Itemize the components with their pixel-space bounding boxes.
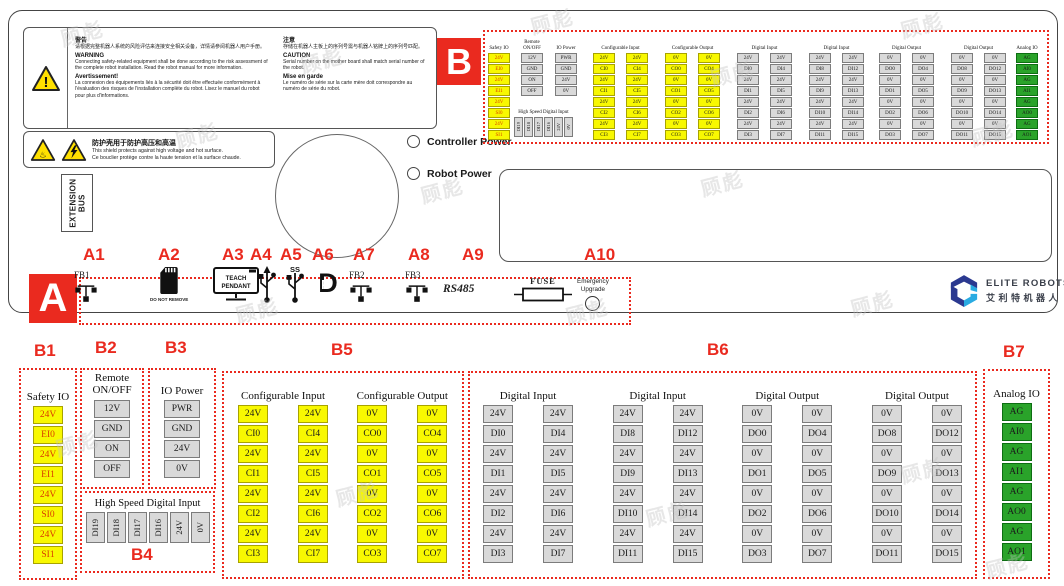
- pin-cell: 24V: [737, 75, 759, 85]
- pin-cell: ON: [521, 75, 543, 85]
- pin-cell: DI4: [543, 425, 573, 443]
- pin-cell: 0V: [665, 119, 687, 129]
- pin-cell: 24V: [673, 445, 703, 463]
- pin-cell: AG: [1016, 119, 1038, 129]
- io-group-co: Configurable Output0VCO00VCO10VCO20VCO30…: [665, 35, 720, 140]
- pin-cell: CI3: [238, 545, 268, 563]
- pin-cell: AI1: [1016, 86, 1038, 96]
- pin-cell: DO6: [912, 108, 934, 118]
- io-group-safety: Safety IO24VEI024VEI124VSI024VSI1: [488, 35, 510, 140]
- svg-text:♨: ♨: [39, 149, 47, 159]
- callout-a4: A4: [250, 245, 272, 265]
- pin-cell: 0V: [984, 97, 1006, 107]
- pin-cell: AO1: [1016, 130, 1038, 140]
- pin-cell: CO3: [357, 545, 387, 563]
- pin-cell: SI0: [488, 108, 510, 118]
- io-group-title: Digital Input: [824, 35, 850, 51]
- pin-cell: 0V: [698, 119, 720, 129]
- pin-cell: 0V: [742, 525, 772, 543]
- pin-cell: 24V: [809, 75, 831, 85]
- section-b-region: Safety IO24VEI024VEI124VSI024VSI1Remote …: [483, 30, 1049, 144]
- brand-logo: ELITE ROBOTS 艾利特机器人: [949, 274, 1064, 308]
- pin-cell: 24V: [170, 512, 189, 543]
- pin-cell: DO11: [951, 130, 973, 140]
- io-group-do2: Digital Output0VDO80VDO90VDO100VDO110VDO…: [951, 35, 1006, 140]
- pin-cell: CI7: [298, 545, 328, 563]
- pin-cell: DO1: [742, 465, 772, 483]
- pin-cell: CI3: [593, 130, 615, 140]
- pin-cell: CO6: [698, 108, 720, 118]
- pin-cell: 0V: [357, 525, 387, 543]
- pin-cell: 0V: [872, 485, 902, 503]
- fb2-label: FB2: [349, 270, 365, 280]
- pin-cell: CO4: [417, 425, 447, 443]
- robot-power-label: Robot Power: [427, 168, 492, 180]
- pin-cell: CO0: [665, 64, 687, 74]
- pin-cell: 0V: [191, 512, 210, 543]
- pin-cell: DI7: [543, 545, 573, 563]
- pin-cell: 24V: [613, 405, 643, 423]
- io-group-title: Digital Output: [755, 377, 819, 402]
- pin-cell: 0V: [417, 485, 447, 503]
- fb-icon: [405, 281, 429, 306]
- pin-cell: DI3: [737, 130, 759, 140]
- io-group-do1: Digital Output0VDO00VDO10VDO20VDO30VDO40…: [879, 35, 934, 140]
- pin-cell: 0V: [564, 117, 573, 137]
- pin-cell: 24V: [809, 119, 831, 129]
- brand-name: ELITE ROBOTS: [986, 278, 1064, 289]
- pin-cell: 12V: [94, 400, 130, 418]
- caution-zh-body: 存储在机器人主板上的序列号需与机器人铭牌上的序列号匹配。: [283, 44, 429, 51]
- pin-cell: 24V: [238, 485, 268, 503]
- pin-cell: AI1: [1002, 463, 1032, 481]
- pin-cell: AG: [1016, 53, 1038, 63]
- pin-cell: CI1: [238, 465, 268, 483]
- pin-cell: DO8: [951, 64, 973, 74]
- io-group-hsdi: High Speed Digital InputDI19DI18DI17DI16…: [86, 496, 210, 543]
- fb3-port: FB3: [405, 270, 429, 306]
- pin-cell: 24V: [770, 75, 792, 85]
- pin-cell: CO2: [357, 505, 387, 523]
- io-group-remote: Remote ON/OFF12VGNDONOFF: [519, 35, 545, 96]
- pin-cell: DI13: [842, 86, 864, 96]
- pin-cell: CO0: [357, 425, 387, 443]
- warning-zh-body: 请根据完整机器人系统的风险评估来连接安全相关设备，详情请参阅机器人用户手册。: [75, 44, 269, 51]
- io-group-title: Configurable Input: [241, 377, 325, 402]
- b3-box: IO PowerPWRGND24V0V: [148, 368, 216, 489]
- pin-cell: 0V: [802, 525, 832, 543]
- pin-cell: 0V: [951, 53, 973, 63]
- io-group-title: Remote ON/OFF: [519, 35, 545, 51]
- brand-name-zh: 艾利特机器人: [986, 291, 1064, 304]
- pin-cell: 0V: [912, 53, 934, 63]
- fb2-port: FB2: [349, 270, 373, 306]
- sd-card-slot: DO NOT REMOVE: [150, 266, 188, 302]
- pin-cell: 24V: [298, 405, 328, 423]
- pin-cell: CI6: [626, 108, 648, 118]
- io-group-title: Configurable Output: [357, 377, 448, 402]
- fb3-label: FB3: [405, 270, 421, 280]
- pin-cell: 0V: [951, 75, 973, 85]
- pin-cell: 24V: [842, 119, 864, 129]
- io-group-di1: Digital Input24VDI024VDI124VDI224VDI324V…: [737, 35, 792, 140]
- pin-cell: DI1: [737, 86, 759, 96]
- b6-box: Digital Input24VDI024VDI124VDI224VDI324V…: [468, 371, 977, 579]
- warning-notice-box: ! 警告 请根据完整机器人系统的风险评估来连接安全相关设备，详情请参阅机器人用户…: [23, 27, 437, 129]
- pin-cell: 24V: [673, 485, 703, 503]
- io-group-di1: Digital Input24VDI024VDI124VDI224VDI324V…: [483, 377, 573, 563]
- io-group-analog: Analog IOAGAI0AGAI1AGAO0AGAO1: [993, 375, 1040, 561]
- io-group-ci: Configurable Input24VCI024VCI124VCI224VC…: [238, 377, 328, 563]
- callout-b3: B3: [165, 338, 187, 358]
- pin-cell: EI1: [33, 466, 63, 484]
- usb3-port: SS: [284, 265, 306, 304]
- pin-cell: CI2: [238, 505, 268, 523]
- pin-cell: DI18: [524, 117, 533, 137]
- io-group-title: Digital Output: [885, 377, 949, 402]
- warning-fr-body: La connexion des équipements liés à la s…: [75, 80, 269, 100]
- pin-cell: 24V: [809, 53, 831, 63]
- pin-cell: 24V: [555, 75, 577, 85]
- usb-ss-icon: SS: [284, 265, 306, 304]
- teach-pendant-icon: TEACH PENDANT: [213, 267, 259, 302]
- pin-cell: GND: [164, 420, 200, 438]
- pin-cell: CO5: [698, 86, 720, 96]
- pin-cell: DO9: [872, 465, 902, 483]
- svg-text:P: P: [321, 277, 330, 292]
- pin-cell: CO3: [665, 130, 687, 140]
- pin-cell: DO3: [879, 130, 901, 140]
- io-group-hsdi: High Speed Digital InputDI19DI18DI17DI16…: [514, 108, 573, 137]
- pin-cell: 24V: [626, 75, 648, 85]
- b2-box: Remote ON/OFF12VGNDONOFF: [80, 368, 144, 489]
- pin-cell: 24V: [770, 119, 792, 129]
- pin-cell: 0V: [802, 445, 832, 463]
- pin-cell: 24V: [593, 75, 615, 85]
- pin-cell: 0V: [665, 75, 687, 85]
- displayport: D P: [314, 269, 342, 297]
- pin-cell: DI17: [128, 512, 147, 543]
- pin-cell: DI6: [543, 505, 573, 523]
- pin-cell: 0V: [951, 97, 973, 107]
- extension-bus-port: EXTENSION BUS: [61, 174, 93, 232]
- pin-cell: DO9: [951, 86, 973, 96]
- pin-cell: AG: [1002, 443, 1032, 461]
- pin-cell: OFF: [521, 86, 543, 96]
- pin-cell: 0V: [872, 445, 902, 463]
- pin-cell: CO5: [417, 465, 447, 483]
- caution-zh-title: 注意: [283, 35, 429, 44]
- io-group-iopower: IO PowerPWRGND24V0V: [161, 372, 203, 478]
- io-group-di2: Digital Input24VDI824VDI924VDI1024VDI112…: [613, 377, 703, 563]
- io-group-title: Configurable Input: [601, 35, 639, 51]
- pin-cell: DO0: [742, 425, 772, 443]
- pin-cell: 24V: [543, 445, 573, 463]
- pin-cell: CO2: [665, 108, 687, 118]
- usb-icon: [256, 265, 278, 304]
- pin-cell: 0V: [742, 445, 772, 463]
- robot-power-led-row: Robot Power: [407, 167, 492, 180]
- pin-cell: DO11: [872, 545, 902, 563]
- caution-fr-body: Le numéro de série sur la carte mère doi…: [283, 80, 429, 93]
- usb-port: [256, 265, 278, 304]
- io-group-title: Safety IO: [27, 378, 69, 403]
- pin-cell: 24V: [488, 53, 510, 63]
- callout-a10: A10: [584, 245, 615, 265]
- pin-cell: DI6: [770, 108, 792, 118]
- pin-cell: 0V: [932, 525, 962, 543]
- pin-cell: 0V: [357, 485, 387, 503]
- pin-cell: 0V: [879, 119, 901, 129]
- pin-cell: 0V: [984, 53, 1006, 63]
- pin-cell: DO2: [879, 108, 901, 118]
- pin-cell: 24V: [613, 525, 643, 543]
- pin-cell: DI10: [613, 505, 643, 523]
- pin-cell: 24V: [842, 75, 864, 85]
- pin-cell: CO1: [357, 465, 387, 483]
- pin-cell: 24V: [33, 406, 63, 424]
- pin-cell: CI1: [593, 86, 615, 96]
- pin-cell: DO8: [872, 425, 902, 443]
- pin-cell: 24V: [842, 97, 864, 107]
- pin-cell: DI9: [809, 86, 831, 96]
- sd-card-icon: [159, 266, 179, 295]
- io-group-remote: Remote ON/OFF12VGNDONOFF: [84, 372, 140, 478]
- fb-icon: [349, 281, 373, 306]
- warning-triangle-column: !: [24, 28, 68, 128]
- b7-box: Analog IOAGAI0AGAI1AGAO0AGAO1: [983, 369, 1050, 579]
- pin-cell: 24V: [33, 486, 63, 504]
- io-group-title: Remote ON/OFF: [84, 372, 140, 397]
- callout-b2: B2: [95, 338, 117, 358]
- callout-a1: A1: [83, 245, 105, 265]
- elite-logo-icon: [949, 274, 979, 308]
- io-group-title: Configurable Output: [672, 35, 714, 51]
- pin-cell: DO13: [984, 86, 1006, 96]
- pin-cell: DI19: [514, 117, 523, 137]
- b1-box: Safety IO24VEI024VEI124VSI024VSI1: [19, 368, 77, 580]
- pin-cell: 24V: [554, 117, 563, 137]
- pin-cell: DO5: [802, 465, 832, 483]
- pin-cell: 0V: [357, 405, 387, 423]
- callout-a3: A3: [222, 245, 244, 265]
- pin-cell: 24V: [298, 445, 328, 463]
- pin-cell: DO13: [932, 465, 962, 483]
- callout-a2: A2: [158, 245, 180, 265]
- pin-cell: OFF: [94, 460, 130, 478]
- pin-cell: 24V: [543, 485, 573, 503]
- pin-cell: 24V: [298, 485, 328, 503]
- callout-b1: B1: [34, 341, 56, 361]
- pin-cell: 0V: [164, 460, 200, 478]
- svg-text:SS: SS: [290, 265, 300, 274]
- pin-cell: 24V: [33, 526, 63, 544]
- pin-cell: CI2: [593, 108, 615, 118]
- svg-text:PENDANT: PENDANT: [221, 284, 250, 290]
- pin-cell: 24V: [737, 119, 759, 129]
- pin-cell: DI12: [842, 64, 864, 74]
- pin-cell: 0V: [872, 525, 902, 543]
- pin-cell: 24V: [543, 405, 573, 423]
- pin-cell: 0V: [698, 53, 720, 63]
- pin-cell: DI1: [483, 465, 513, 483]
- pin-cell: DI14: [842, 108, 864, 118]
- io-group-safety: Safety IO24VEI024VEI124VSI024VSI1: [27, 378, 69, 564]
- pin-cell: DO2: [742, 505, 772, 523]
- pin-cell: 0V: [665, 53, 687, 63]
- pin-cell: EI0: [33, 426, 63, 444]
- emergency-upgrade-label: Emergency Upgrade: [577, 278, 609, 294]
- pin-cell: 24V: [238, 525, 268, 543]
- pin-cell: DI2: [737, 108, 759, 118]
- pin-cell: DI19: [86, 512, 105, 543]
- pin-cell: 0V: [912, 119, 934, 129]
- pin-cell: 0V: [872, 405, 902, 423]
- pin-cell: 0V: [932, 405, 962, 423]
- pin-cell: AG: [1016, 75, 1038, 85]
- b5-box: Configurable Input24VCI024VCI124VCI224VC…: [222, 371, 464, 579]
- io-group-iopower: IO PowerPWRGND24V0V: [555, 35, 577, 96]
- teach-pendant-port: TEACH PENDANT: [213, 267, 259, 302]
- pin-cell: 24V: [298, 525, 328, 543]
- pin-cell: 24V: [626, 119, 648, 129]
- pin-cell: DI5: [770, 86, 792, 96]
- warning-triangle-icon: !: [31, 65, 61, 92]
- callout-b6: B6: [707, 340, 729, 360]
- pin-cell: DI8: [613, 425, 643, 443]
- pin-cell: CI0: [238, 425, 268, 443]
- pin-cell: DO5: [912, 86, 934, 96]
- pin-cell: DI17: [534, 117, 543, 137]
- pin-cell: CI5: [298, 465, 328, 483]
- pin-cell: CI7: [626, 130, 648, 140]
- callout-a7: A7: [353, 245, 375, 265]
- pin-cell: 24V: [809, 97, 831, 107]
- callout-a6: A6: [312, 245, 334, 265]
- pin-cell: 0V: [879, 75, 901, 85]
- pin-cell: CO1: [665, 86, 687, 96]
- pin-cell: DO15: [932, 545, 962, 563]
- caution-text-column: 注意 存储在机器人主板上的序列号需与机器人铭牌上的序列号匹配。 CAUTION …: [276, 28, 436, 128]
- pin-cell: EI0: [488, 64, 510, 74]
- pin-cell: 0V: [984, 119, 1006, 129]
- pin-cell: 24V: [842, 53, 864, 63]
- emergency-upgrade-circle: [585, 296, 600, 311]
- pin-cell: 24V: [613, 445, 643, 463]
- io-group-title: IO Power: [161, 372, 203, 397]
- pin-cell: CI4: [626, 64, 648, 74]
- pin-cell: DO4: [802, 425, 832, 443]
- pin-cell: DI2: [483, 505, 513, 523]
- warning-en-body: Connecting safety-related equipment shal…: [75, 59, 269, 72]
- pin-cell: CO7: [698, 130, 720, 140]
- pin-cell: 24V: [488, 75, 510, 85]
- rs485-label: RS485: [443, 283, 474, 295]
- high-voltage-icon: [61, 138, 87, 162]
- pin-cell: DI4: [770, 64, 792, 74]
- pin-cell: DO10: [951, 108, 973, 118]
- pin-cell: PWR: [164, 400, 200, 418]
- pin-cell: 24V: [770, 53, 792, 63]
- brand-text-block: ELITE ROBOTS 艾利特机器人: [986, 278, 1064, 304]
- fan-circle: [275, 134, 399, 258]
- pin-cell: 24V: [613, 485, 643, 503]
- pin-cell: 0V: [357, 445, 387, 463]
- diagram-canvas: ! 警告 请根据完整机器人系统的风险评估来连接安全相关设备，详情请参阅机器人用户…: [0, 0, 1064, 586]
- pin-cell: DO12: [984, 64, 1006, 74]
- pin-cell: DO4: [912, 64, 934, 74]
- pin-cell: 0V: [417, 525, 447, 543]
- io-group-title: High Speed Digital Input: [518, 108, 568, 115]
- pin-cell: DO15: [984, 130, 1006, 140]
- io-group-title: Analog IO: [993, 375, 1040, 400]
- pin-cell: DI13: [673, 465, 703, 483]
- pin-cell: 0V: [742, 485, 772, 503]
- section-a-tag: A: [29, 274, 77, 323]
- pin-cell: 24V: [483, 525, 513, 543]
- pin-cell: DO14: [984, 108, 1006, 118]
- pin-cell: 24V: [737, 53, 759, 63]
- io-group-title: Digital Input: [752, 35, 778, 51]
- pin-cell: AI0: [1002, 423, 1032, 441]
- pin-cell: AI0: [1016, 64, 1038, 74]
- warning-zh-title: 警告: [75, 35, 269, 44]
- pin-cell: 0V: [951, 119, 973, 129]
- io-group-title: Digital Input: [500, 377, 557, 402]
- pin-cell: DO0: [879, 64, 901, 74]
- pin-cell: 24V: [626, 97, 648, 107]
- pin-cell: 24V: [593, 119, 615, 129]
- pin-cell: 24V: [770, 97, 792, 107]
- pin-cell: CI4: [298, 425, 328, 443]
- pin-cell: DI5: [543, 465, 573, 483]
- pin-cell: SI1: [33, 546, 63, 564]
- pin-cell: DI0: [483, 425, 513, 443]
- displayport-icon: D P: [314, 269, 342, 297]
- shield-zh: 防护壳用于防护高压和高温: [92, 138, 241, 148]
- pin-cell: 0V: [912, 97, 934, 107]
- io-group-title: Digital Output: [964, 35, 993, 51]
- pin-cell: 0V: [984, 75, 1006, 85]
- pin-cell: PWR: [555, 53, 577, 63]
- pin-cell: DO7: [912, 130, 934, 140]
- pin-cell: DI16: [544, 117, 553, 137]
- pin-cell: DI9: [613, 465, 643, 483]
- io-group-do2: Digital Output0VDO80VDO90VDO100VDO110VDO…: [872, 377, 962, 563]
- pin-cell: 0V: [802, 405, 832, 423]
- fuse: FUSE: [514, 276, 572, 303]
- svg-text:TEACH: TEACH: [226, 276, 247, 282]
- io-group-title: Digital Output: [892, 35, 921, 51]
- io-group-analog: Analog IOAGAI0AGAI1AGAO0AGAO1: [1016, 35, 1038, 140]
- callout-b5: B5: [331, 340, 353, 360]
- callout-b4: B4: [131, 545, 153, 565]
- callout-a8: A8: [408, 245, 430, 265]
- pin-cell: 24V: [483, 445, 513, 463]
- pin-cell: CI0: [593, 64, 615, 74]
- fb1-port: FB1: [74, 270, 98, 306]
- pin-cell: 0V: [932, 445, 962, 463]
- hot-surface-icon: ♨: [30, 138, 56, 162]
- pin-cell: DI15: [673, 545, 703, 563]
- shield-notice-box: ♨ 防护壳用于防护高压和高温 This shield protects agai…: [23, 131, 275, 168]
- pin-cell: 24V: [238, 445, 268, 463]
- callout-a5: A5: [280, 245, 302, 265]
- pin-cell: AO0: [1016, 108, 1038, 118]
- pin-cell: 24V: [33, 446, 63, 464]
- pin-cell: 0V: [742, 405, 772, 423]
- pin-cell: CI6: [298, 505, 328, 523]
